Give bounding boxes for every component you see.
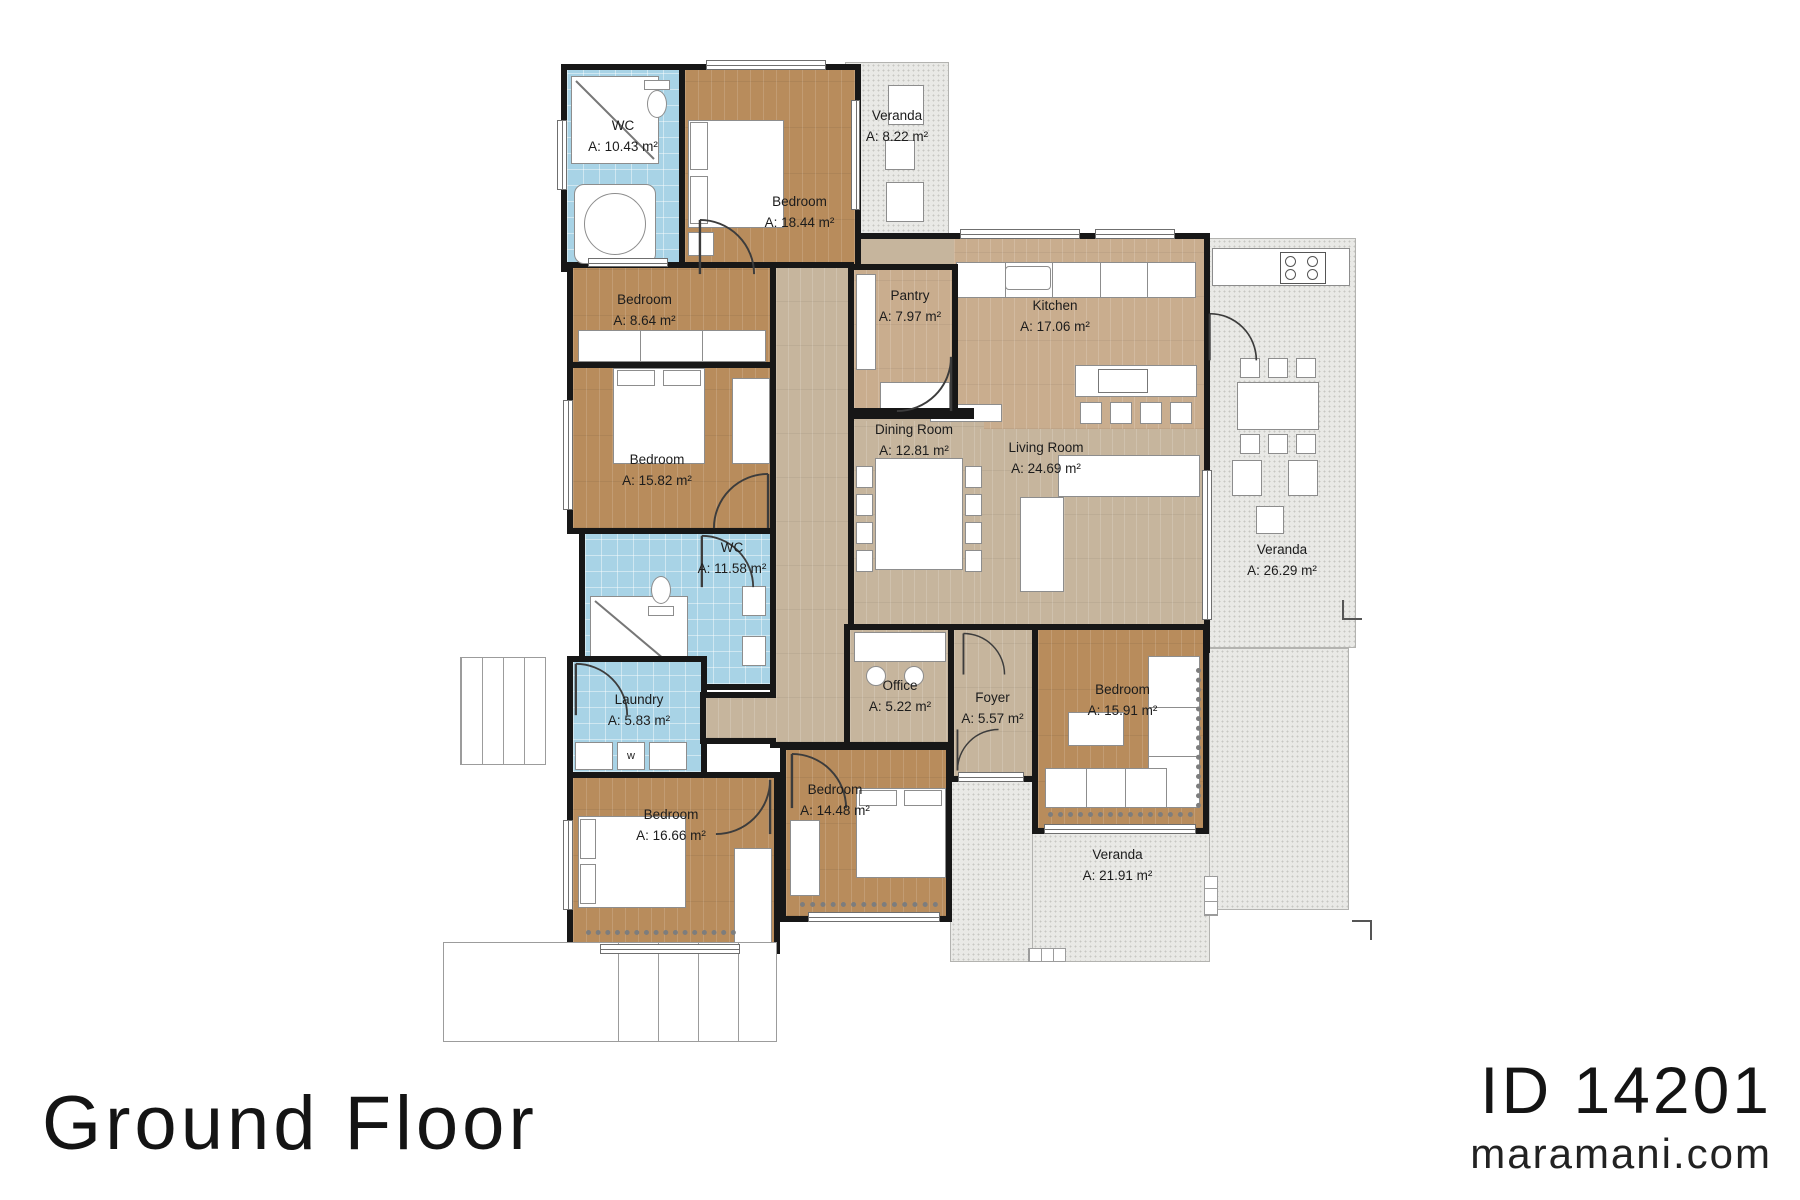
wardrobe <box>734 848 772 944</box>
website: maramani.com <box>1470 1130 1772 1178</box>
exterior-steps-west <box>460 657 546 765</box>
chair <box>965 494 982 516</box>
room-label-kitchen: Kitchen A: 17.06 m² <box>990 296 1120 338</box>
room-label-pantry: Pantry A: 7.97 m² <box>855 286 965 328</box>
room-name: Bedroom <box>562 290 727 311</box>
laundry-counter <box>649 742 687 770</box>
room-name: Bedroom <box>722 192 877 213</box>
room-name: Foyer <box>940 688 1045 709</box>
curtain <box>586 930 736 935</box>
chair <box>965 522 982 544</box>
room-area: A: 24.69 m² <box>962 459 1130 480</box>
room-label-bedroom-1582: Bedroom A: 15.82 m² <box>557 450 757 492</box>
exterior-terrace-south <box>443 942 777 1042</box>
window <box>808 912 940 922</box>
room-label-bedroom-864: Bedroom A: 8.64 m² <box>562 290 727 332</box>
kitchen-sink-icon <box>1005 266 1051 290</box>
chair <box>856 550 873 572</box>
room-name: Kitchen <box>990 296 1120 317</box>
curtain <box>1048 812 1193 817</box>
reference-mark <box>1342 600 1362 620</box>
room-area: A: 21.91 m² <box>1030 866 1205 887</box>
dining-table <box>875 458 963 570</box>
chair <box>1268 434 1288 454</box>
room-label-veranda-east: Veranda A: 26.29 m² <box>1222 540 1342 582</box>
reference-mark <box>1352 920 1372 940</box>
room-name: Bedroom <box>590 805 752 826</box>
room-label-veranda-north: Veranda A: 8.22 m² <box>843 106 951 148</box>
room-name: Living Room <box>962 438 1130 459</box>
room-name: Pantry <box>855 286 965 307</box>
bar-stool <box>1080 402 1102 424</box>
wardrobe <box>578 330 766 362</box>
armchair <box>1288 460 1318 496</box>
room-name: Veranda <box>1030 845 1205 866</box>
room-area: A: 17.06 m² <box>990 317 1120 338</box>
room-label-veranda-south: Veranda A: 21.91 m² <box>1030 845 1205 887</box>
sink <box>742 636 766 666</box>
bathtub <box>574 184 656 264</box>
window <box>1095 229 1175 239</box>
room-label-bedroom-1666: Bedroom A: 16.66 m² <box>590 805 752 847</box>
bar-stool <box>1140 402 1162 424</box>
room-label-bedroom-1448: Bedroom A: 14.48 m² <box>760 780 910 822</box>
stove-icon <box>1280 252 1326 284</box>
exterior-steps-south <box>1028 948 1066 962</box>
washer-label: w <box>627 750 635 762</box>
room-area: A: 14.48 m² <box>760 801 910 822</box>
room-area: A: 12.81 m² <box>848 441 980 462</box>
room-area: A: 18.44 m² <box>722 213 877 234</box>
room-area: A: 8.22 m² <box>843 127 951 148</box>
window <box>588 258 668 267</box>
room-area: A: 16.66 m² <box>590 826 752 847</box>
room-area: A: 11.58 m² <box>672 559 792 580</box>
room-name: Veranda <box>1222 540 1342 561</box>
floor-title: Ground Floor <box>42 1080 538 1167</box>
veranda-east-walkway <box>1209 648 1349 910</box>
room-name: Bedroom <box>760 780 910 801</box>
room-area: A: 5.57 m² <box>940 709 1045 730</box>
room-label-wc-2: WC A: 11.58 m² <box>672 538 792 580</box>
sink <box>742 586 766 616</box>
wardrobe <box>790 820 820 896</box>
room-label-bedroom-1591: Bedroom A: 15.91 m² <box>1050 680 1195 722</box>
room-label-office: Office A: 5.22 m² <box>845 676 955 718</box>
kitchen-counter <box>956 262 1196 298</box>
room-label-wc-1: WC A: 10.43 m² <box>561 116 685 158</box>
room-label-laundry: Laundry A: 5.83 m² <box>580 690 698 732</box>
door-pantry <box>895 355 953 413</box>
side-table <box>1256 506 1284 534</box>
window <box>563 820 573 910</box>
door-entrance <box>956 728 1000 772</box>
room-area: A: 15.91 m² <box>1050 701 1195 722</box>
chair <box>856 494 873 516</box>
door-foyer-living <box>962 632 1006 676</box>
window <box>600 944 740 954</box>
floor-plan-sheet: w <box>0 0 1800 1200</box>
wall-oven-icon <box>1098 369 1148 393</box>
hallway-branch <box>700 692 776 744</box>
bay-window <box>1044 824 1196 834</box>
room-name: Bedroom <box>1050 680 1195 701</box>
desk <box>854 632 946 662</box>
toilet <box>648 576 674 616</box>
window <box>960 229 1080 239</box>
washing-machine: w <box>617 742 645 770</box>
chair <box>856 522 873 544</box>
chair <box>965 550 982 572</box>
chair <box>1296 358 1316 378</box>
plan-id: ID 14201 <box>1480 1052 1772 1128</box>
room-label-foyer: Foyer A: 5.57 m² <box>940 688 1045 730</box>
room-name: WC <box>672 538 792 559</box>
veranda-south-left <box>950 776 1040 962</box>
window <box>706 60 826 70</box>
room-label-dining: Dining Room A: 12.81 m² <box>848 420 980 462</box>
room-area: A: 5.83 m² <box>580 711 698 732</box>
chair <box>1296 434 1316 454</box>
exterior-steps-east <box>1204 876 1218 916</box>
room-name: Veranda <box>843 106 951 127</box>
sliding-door <box>1202 470 1212 620</box>
entrance-door-threshold <box>958 772 1024 782</box>
room-area: A: 7.97 m² <box>855 307 965 328</box>
sofa <box>1020 497 1064 592</box>
chair <box>1240 434 1260 454</box>
corner-sofa <box>1045 768 1167 808</box>
room-area: A: 26.29 m² <box>1222 561 1342 582</box>
curtain <box>1196 668 1201 808</box>
armchair <box>886 182 924 222</box>
outdoor-dining-table <box>1237 382 1319 430</box>
hallway <box>770 262 854 748</box>
bar-stool <box>1110 402 1132 424</box>
room-name: Office <box>845 676 955 697</box>
toilet <box>644 80 670 120</box>
bar-stool <box>1170 402 1192 424</box>
chair <box>856 466 873 488</box>
room-area: A: 15.82 m² <box>557 471 757 492</box>
room-area: A: 10.43 m² <box>561 137 685 158</box>
room-area: A: 5.22 m² <box>845 697 955 718</box>
room-name: Dining Room <box>848 420 980 441</box>
chair <box>1268 358 1288 378</box>
room-label-living: Living Room A: 24.69 m² <box>962 438 1130 480</box>
door-kitchen-veranda <box>1208 312 1258 362</box>
room-area: A: 8.64 m² <box>562 311 727 332</box>
curtain <box>800 902 938 907</box>
room-name: Laundry <box>580 690 698 711</box>
laundry-counter <box>575 742 613 770</box>
room-name: Bedroom <box>557 450 757 471</box>
armchair <box>1232 460 1262 496</box>
room-label-bedroom-1844: Bedroom A: 18.44 m² <box>722 192 877 234</box>
room-name: WC <box>561 116 685 137</box>
